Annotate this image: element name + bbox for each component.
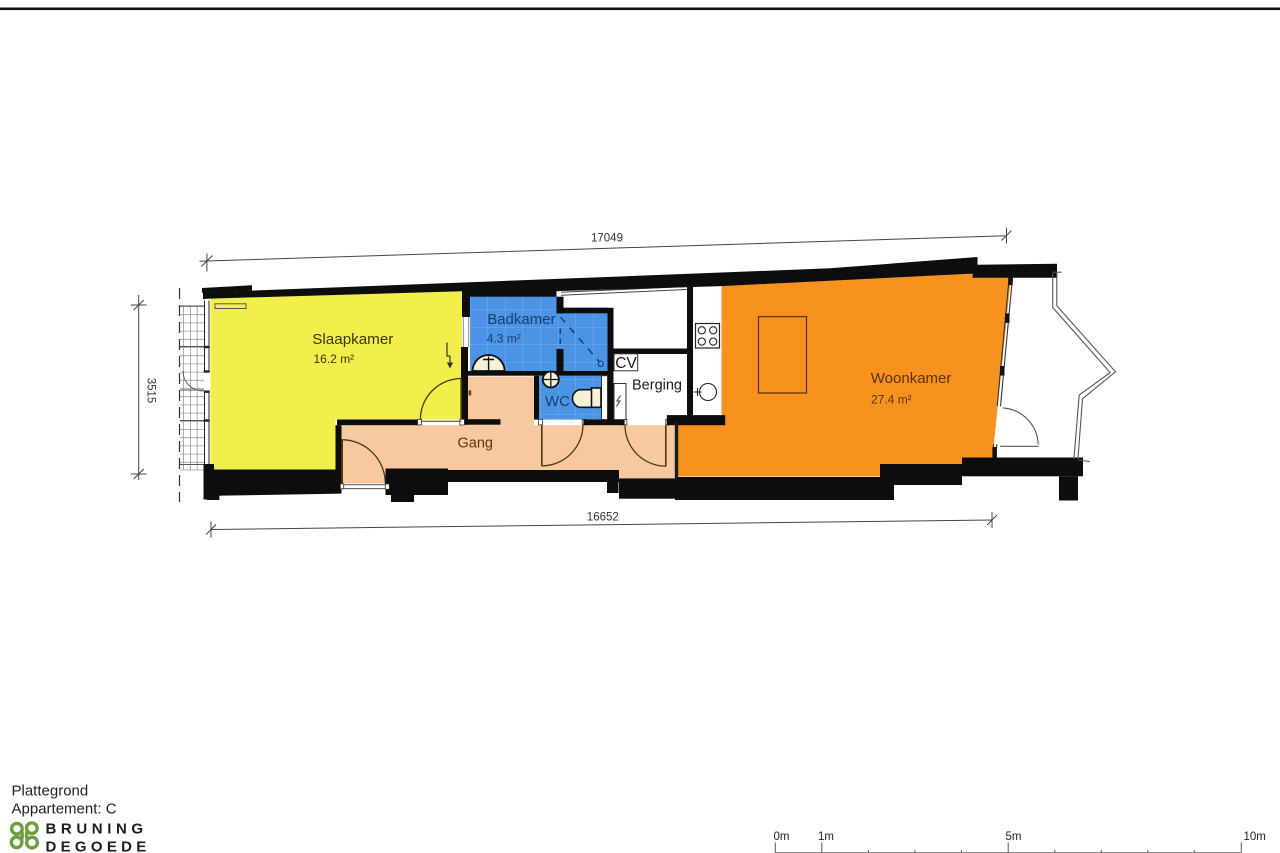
- svg-text:0m: 0m: [774, 831, 790, 843]
- svg-text:DEGOEDE: DEGOEDE: [46, 839, 151, 853]
- svg-text:4.3 m²: 4.3 m²: [487, 332, 521, 346]
- svg-text:BRUNING: BRUNING: [46, 821, 148, 838]
- svg-text:Berging: Berging: [632, 378, 682, 394]
- svg-text:1m: 1m: [818, 831, 834, 843]
- svg-text:Gang: Gang: [458, 436, 493, 452]
- svg-text:WC: WC: [545, 393, 570, 410]
- svg-text:Woonkamer: Woonkamer: [871, 370, 952, 387]
- svg-text:5m: 5m: [1006, 831, 1022, 843]
- svg-text:3515: 3515: [145, 378, 157, 404]
- svg-text:17049: 17049: [591, 233, 623, 245]
- svg-text:Badkamer: Badkamer: [487, 311, 555, 328]
- svg-text:Appartement: C: Appartement: C: [12, 801, 117, 818]
- svg-text:27.4 m²: 27.4 m²: [871, 392, 912, 406]
- svg-text:10m: 10m: [1244, 831, 1266, 843]
- svg-text:16652: 16652: [587, 512, 619, 524]
- svg-text:CV: CV: [615, 355, 637, 372]
- svg-text:Plattegrond: Plattegrond: [12, 783, 89, 800]
- svg-text:16.2 m²: 16.2 m²: [314, 352, 355, 366]
- svg-text:Slaapkamer: Slaapkamer: [312, 331, 393, 348]
